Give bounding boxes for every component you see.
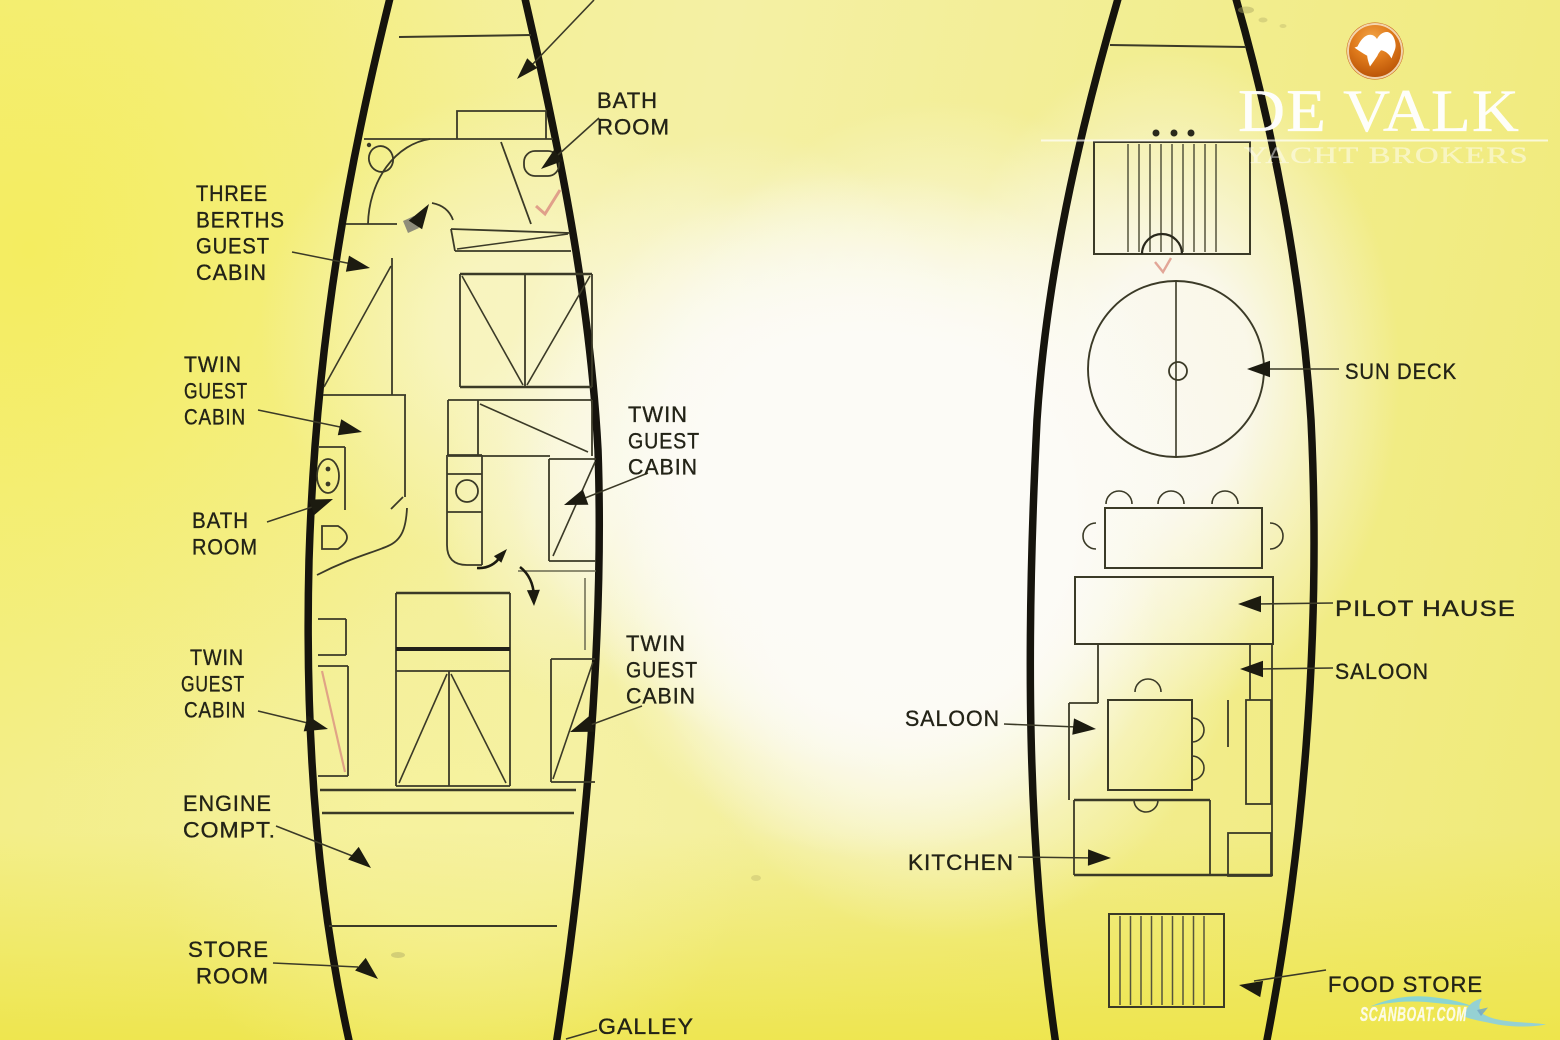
svg-text:DE VALK: DE VALK <box>1238 78 1520 144</box>
svg-text:FOOD STORE: FOOD STORE <box>1328 972 1483 997</box>
svg-text:THREE: THREE <box>196 181 268 206</box>
svg-text:TWIN: TWIN <box>184 352 242 377</box>
svg-text:KITCHEN: KITCHEN <box>908 850 1014 875</box>
svg-text:STORE: STORE <box>188 937 269 962</box>
svg-text:TWIN: TWIN <box>628 402 688 427</box>
svg-text:YACHT BROKERS: YACHT BROKERS <box>1244 143 1529 168</box>
svg-text:PILOT HAUSE: PILOT HAUSE <box>1335 596 1516 621</box>
svg-text:SALOON: SALOON <box>905 706 1000 731</box>
svg-text:BATH: BATH <box>597 88 658 113</box>
svg-text:ROOM: ROOM <box>597 114 670 139</box>
svg-text:GUEST: GUEST <box>626 657 698 682</box>
svg-text:BATH: BATH <box>192 508 249 533</box>
svg-text:GUEST: GUEST <box>181 671 245 696</box>
svg-text:GALLEY: GALLEY <box>598 1014 694 1039</box>
svg-text:BERTHS: BERTHS <box>196 207 285 232</box>
svg-text:COMPT.: COMPT. <box>183 817 276 842</box>
svg-text:GUEST: GUEST <box>184 378 248 403</box>
svg-text:GUEST: GUEST <box>196 234 270 259</box>
svg-text:TWIN: TWIN <box>626 631 686 656</box>
svg-text:CABIN: CABIN <box>628 455 698 480</box>
svg-text:CABIN: CABIN <box>184 405 246 430</box>
svg-text:GUEST: GUEST <box>628 428 700 453</box>
svg-text:SCANBOAT.COM: SCANBOAT.COM <box>1360 1004 1467 1026</box>
svg-text:ROOM: ROOM <box>196 963 269 988</box>
svg-text:CABIN: CABIN <box>184 698 246 723</box>
svg-text:TWIN: TWIN <box>190 645 244 670</box>
svg-text:CABIN: CABIN <box>196 260 267 285</box>
svg-text:ENGINE: ENGINE <box>183 791 272 816</box>
svg-text:CABIN: CABIN <box>626 684 696 709</box>
svg-text:SUN DECK: SUN DECK <box>1345 359 1457 384</box>
svg-text:SALOON: SALOON <box>1335 659 1429 684</box>
svg-text:ROOM: ROOM <box>192 534 258 559</box>
